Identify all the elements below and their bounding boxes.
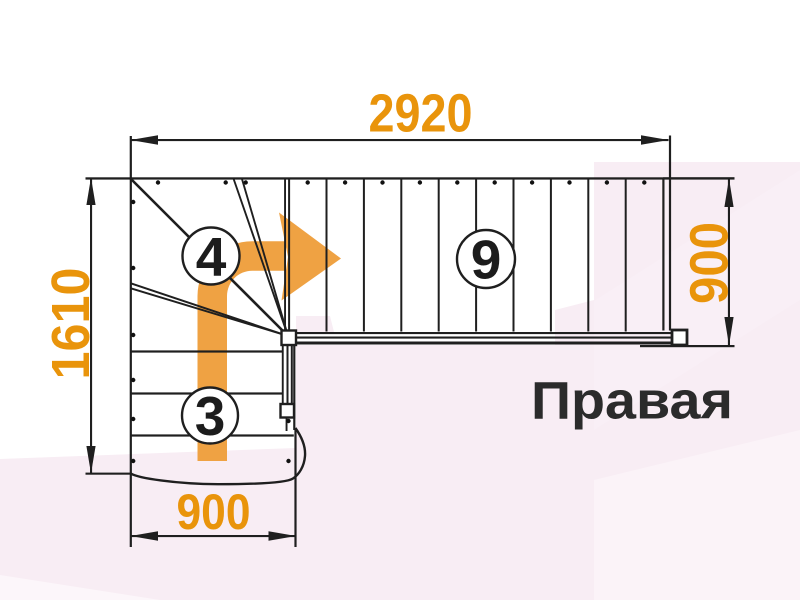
svg-text:9: 9	[471, 229, 502, 291]
svg-text:900: 900	[679, 222, 739, 304]
svg-text:3: 3	[195, 385, 226, 447]
svg-text:Правая: Правая	[531, 372, 733, 431]
svg-text:1610: 1610	[41, 268, 101, 380]
svg-text:4: 4	[196, 226, 227, 288]
svg-text:900: 900	[177, 484, 251, 540]
svg-text:2920: 2920	[369, 84, 473, 144]
